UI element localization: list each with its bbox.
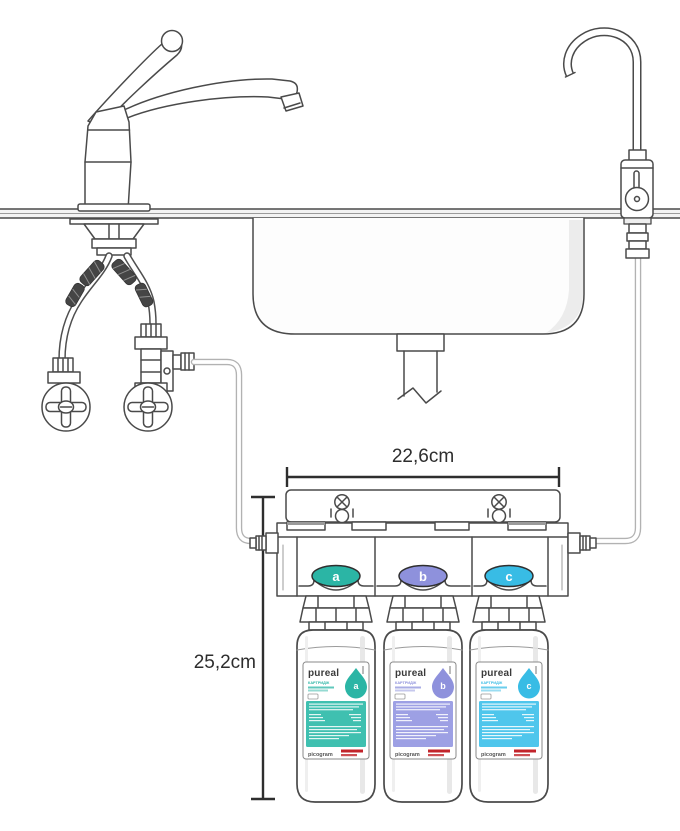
label-info-block — [306, 701, 366, 747]
width-dimension: 22,6cm — [287, 446, 559, 487]
faucet-body — [85, 106, 131, 210]
faucet-tube-connector — [624, 218, 651, 258]
mounting-bracket — [286, 490, 560, 523]
cartridge-title: КАРТРИДЖ — [481, 681, 503, 685]
filter-stage-badge-c: c — [485, 566, 533, 587]
stage-letter: b — [419, 569, 427, 584]
filter-stage-badge-b: b — [399, 566, 447, 587]
faucet-handle-wheel — [626, 188, 649, 211]
bottle-necks — [300, 596, 545, 630]
svg-text:b: b — [440, 681, 446, 691]
faucet-undercounter-mount — [70, 219, 158, 255]
vendor-wordmark: picogram — [481, 752, 506, 758]
stage-letter: c — [505, 569, 512, 584]
width-dimension-label: 22,6cm — [392, 446, 454, 467]
filter-outlet-tubing — [589, 258, 638, 541]
bottle-label-b: pureal КАРТРИДЖ b picogram — [390, 662, 456, 759]
faucet-lever-knob — [162, 31, 183, 52]
shutoff-valve-right — [124, 383, 172, 431]
label-info-block — [479, 701, 539, 747]
filter-unit: a b c — [250, 490, 596, 802]
outlet-fitting — [568, 533, 596, 553]
faucet-spout — [120, 79, 297, 118]
shutoff-valve-left — [42, 358, 90, 431]
drain-pipe — [397, 334, 444, 403]
brand-wordmark: pureal — [308, 668, 339, 679]
cartridge-title: КАРТРИДЖ — [395, 681, 417, 685]
brand-wordmark: pureal — [481, 668, 512, 679]
installation-diagram: 22,6cm 25,2cm — [0, 0, 680, 831]
stage-letter: a — [332, 569, 340, 584]
height-dimension-label: 25,2cm — [194, 652, 256, 673]
svg-text:c: c — [526, 681, 531, 691]
inlet-fitting — [250, 533, 278, 553]
vendor-wordmark: picogram — [308, 752, 333, 758]
filter-inlet-tubing — [194, 362, 254, 541]
vendor-wordmark: picogram — [395, 752, 420, 758]
filter-head: a b c — [250, 522, 596, 596]
sink-basin — [253, 218, 584, 403]
label-info-block — [393, 701, 453, 747]
cartridge-title: КАРТРИДЖ — [308, 681, 330, 685]
filter-stage-badge-a: a — [312, 566, 360, 587]
bottle-label-a: pureal КАРТРИДЖ a picogram — [303, 662, 369, 759]
faucet-base — [78, 204, 150, 211]
bottle-label-c: pureal КАРТРИДЖ c picogram — [476, 662, 542, 759]
brand-wordmark: pureal — [395, 668, 426, 679]
